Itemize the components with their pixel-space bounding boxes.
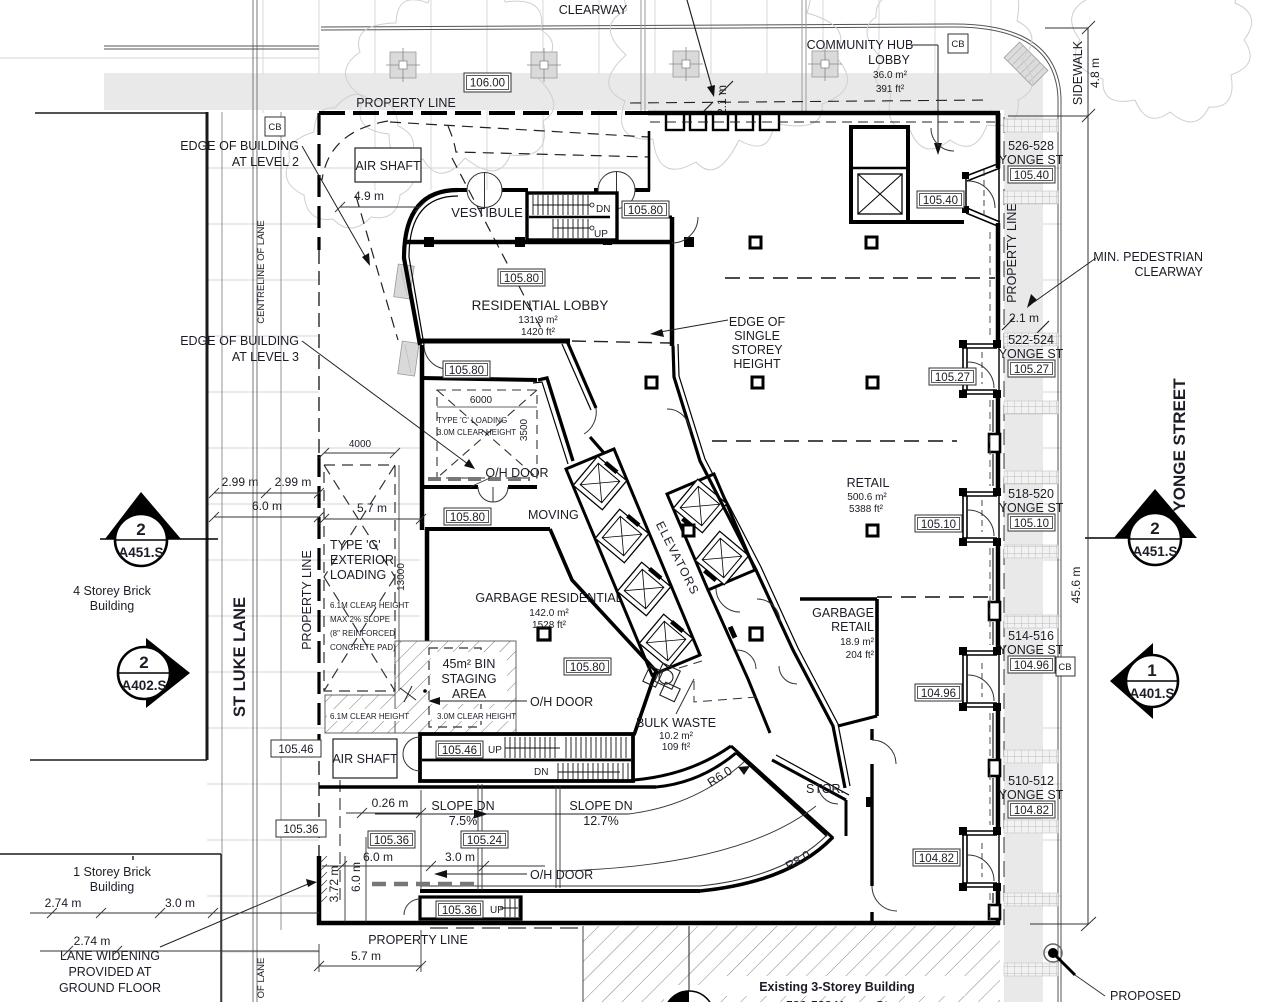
svg-text:DN: DN bbox=[596, 204, 610, 215]
svg-text:6.0 m: 6.0 m bbox=[252, 499, 282, 513]
svg-text:6.1M CLEAR HEIGHT: 6.1M CLEAR HEIGHT bbox=[330, 601, 409, 610]
svg-text:6.1M CLEAR HEIGHT: 6.1M CLEAR HEIGHT bbox=[330, 712, 409, 721]
svg-text:104.82: 104.82 bbox=[1014, 805, 1049, 817]
svg-text:36.0 m²: 36.0 m² bbox=[873, 70, 908, 81]
svg-text:CENTRELINE OF LANE: CENTRELINE OF LANE bbox=[256, 220, 267, 323]
svg-text:UP: UP bbox=[490, 905, 504, 916]
svg-text:AIR SHAFT: AIR SHAFT bbox=[355, 159, 421, 173]
svg-text:CB: CB bbox=[951, 39, 964, 50]
svg-text:105.10: 105.10 bbox=[1014, 518, 1049, 530]
svg-text:YONGE ST: YONGE ST bbox=[999, 643, 1064, 657]
svg-text:526-528: 526-528 bbox=[1008, 139, 1054, 153]
svg-text:CONCRETE PAD): CONCRETE PAD) bbox=[330, 643, 396, 652]
svg-text:105.46: 105.46 bbox=[442, 745, 477, 757]
svg-text:204 ft²: 204 ft² bbox=[846, 650, 875, 661]
svg-text:391 ft²: 391 ft² bbox=[876, 84, 905, 95]
svg-text:105.36: 105.36 bbox=[374, 835, 409, 847]
svg-text:YONGE STREET: YONGE STREET bbox=[1170, 378, 1189, 512]
svg-text:PROPOSED: PROPOSED bbox=[1110, 989, 1181, 1002]
svg-text:500.6 m²: 500.6 m² bbox=[847, 492, 887, 503]
svg-text:4000: 4000 bbox=[349, 439, 372, 450]
svg-text:18.9 m²: 18.9 m² bbox=[840, 637, 875, 648]
svg-text:105.27: 105.27 bbox=[1014, 364, 1049, 376]
svg-text:105.40: 105.40 bbox=[923, 195, 958, 207]
svg-text:HEIGHT: HEIGHT bbox=[733, 357, 781, 371]
svg-text:105.24: 105.24 bbox=[467, 835, 503, 847]
svg-text:522-524: 522-524 bbox=[1008, 333, 1054, 347]
svg-text:GROUND FLOOR: GROUND FLOOR bbox=[59, 981, 161, 995]
svg-text:2: 2 bbox=[1150, 519, 1159, 538]
svg-text:3.0M CLEAR HEIGHT: 3.0M CLEAR HEIGHT bbox=[437, 428, 516, 437]
svg-text:2.74 m: 2.74 m bbox=[74, 934, 111, 948]
svg-text:AIR SHAFT: AIR SHAFT bbox=[332, 752, 398, 766]
svg-text:A451.S: A451.S bbox=[118, 545, 163, 560]
svg-text:105.36: 105.36 bbox=[283, 824, 318, 836]
svg-text:109 ft²: 109 ft² bbox=[662, 742, 691, 753]
svg-text:104.96: 104.96 bbox=[921, 688, 956, 700]
svg-text:YONGE ST: YONGE ST bbox=[999, 153, 1064, 167]
svg-text:7.5%: 7.5% bbox=[449, 814, 478, 828]
svg-text:514-516: 514-516 bbox=[1008, 629, 1054, 643]
svg-text:GARBAGE RESIDENTIAL: GARBAGE RESIDENTIAL bbox=[475, 591, 622, 605]
svg-text:4.8 m: 4.8 m bbox=[1088, 58, 1102, 88]
svg-text:0.26 m: 0.26 m bbox=[372, 796, 409, 810]
svg-text:LOBBY: LOBBY bbox=[868, 53, 910, 67]
svg-text:4 Storey Brick: 4 Storey Brick bbox=[73, 584, 152, 598]
svg-text:MAX 2% SLOPE: MAX 2% SLOPE bbox=[330, 615, 390, 624]
svg-text:SIDEWALK: SIDEWALK bbox=[1071, 40, 1085, 105]
svg-text:518-520: 518-520 bbox=[1008, 487, 1054, 501]
svg-text:O/H DOOR: O/H DOOR bbox=[485, 466, 548, 480]
svg-text:AREA: AREA bbox=[452, 687, 487, 701]
svg-text:PROPERTY LINE: PROPERTY LINE bbox=[368, 933, 468, 947]
svg-text:1: 1 bbox=[1147, 661, 1156, 680]
svg-text:CLEARWAY: CLEARWAY bbox=[1134, 265, 1203, 279]
svg-text:45.6 m: 45.6 m bbox=[1069, 567, 1083, 604]
svg-text:3500: 3500 bbox=[519, 418, 530, 441]
svg-text:1528 ft²: 1528 ft² bbox=[532, 620, 567, 631]
svg-text:2.99 m: 2.99 m bbox=[222, 475, 259, 489]
svg-text:3.72 m: 3.72 m bbox=[327, 866, 341, 903]
svg-text:12.7%: 12.7% bbox=[583, 814, 618, 828]
svg-text:1420 ft²: 1420 ft² bbox=[521, 327, 556, 338]
svg-text:45m² BIN: 45m² BIN bbox=[443, 657, 496, 671]
svg-text:CLEARWAY: CLEARWAY bbox=[559, 3, 628, 17]
svg-text:YONGE ST: YONGE ST bbox=[999, 788, 1064, 802]
svg-text:TYPE 'G': TYPE 'G' bbox=[330, 538, 381, 552]
svg-text:SLOPE DN: SLOPE DN bbox=[431, 799, 494, 813]
svg-text:3.0 m: 3.0 m bbox=[445, 850, 475, 864]
svg-text:PROPERTY LINE: PROPERTY LINE bbox=[1005, 203, 1019, 303]
svg-text:2.74 m: 2.74 m bbox=[45, 896, 82, 910]
svg-text:A401.S: A401.S bbox=[1129, 686, 1174, 701]
svg-text:SINGLE: SINGLE bbox=[734, 329, 780, 343]
svg-text:SLOPE DN: SLOPE DN bbox=[569, 799, 632, 813]
svg-text:AT LEVEL 2: AT LEVEL 2 bbox=[232, 155, 299, 169]
svg-text:UP: UP bbox=[594, 229, 608, 240]
svg-text:2: 2 bbox=[136, 520, 145, 539]
svg-text:STOR.: STOR. bbox=[806, 782, 844, 796]
svg-text:EDGE OF BUILDING: EDGE OF BUILDING bbox=[180, 334, 299, 348]
svg-text:PROPERTY LINE: PROPERTY LINE bbox=[356, 96, 456, 110]
svg-text:MOVING: MOVING bbox=[528, 508, 579, 522]
svg-text:COMMUNITY HUB: COMMUNITY HUB bbox=[807, 38, 914, 52]
svg-text:GARBAGE: GARBAGE bbox=[812, 606, 874, 620]
svg-text:105.40: 105.40 bbox=[1014, 170, 1049, 182]
svg-text:131.9 m²: 131.9 m² bbox=[518, 315, 558, 326]
svg-text:104.96: 104.96 bbox=[1014, 660, 1049, 672]
svg-text:CB: CB bbox=[268, 122, 281, 133]
svg-text:5388 ft²: 5388 ft² bbox=[849, 504, 884, 515]
svg-text:2.1 m: 2.1 m bbox=[715, 85, 729, 115]
svg-text:Building: Building bbox=[90, 599, 135, 613]
svg-text:PROPERTY LINE: PROPERTY LINE bbox=[300, 550, 314, 650]
svg-text:STOREY: STOREY bbox=[731, 343, 783, 357]
svg-text:ST LUKE LANE: ST LUKE LANE bbox=[231, 597, 249, 717]
svg-text:A402.S: A402.S bbox=[121, 678, 166, 693]
svg-text:PROVIDED AT: PROVIDED AT bbox=[68, 965, 151, 979]
svg-text:Existing 3-Storey Building: Existing 3-Storey Building bbox=[759, 980, 915, 994]
svg-text:MIN. PEDESTRIAN: MIN. PEDESTRIAN bbox=[1093, 250, 1203, 264]
svg-text:A451.S: A451.S bbox=[1132, 544, 1177, 559]
svg-text:1 Storey Brick: 1 Storey Brick bbox=[73, 865, 152, 879]
svg-text:142.0 m²: 142.0 m² bbox=[529, 608, 569, 619]
svg-text:3.0M CLEAR HEIGHT: 3.0M CLEAR HEIGHT bbox=[437, 712, 516, 721]
svg-text:105.80: 105.80 bbox=[450, 512, 485, 524]
svg-text:EDGE OF: EDGE OF bbox=[729, 315, 786, 329]
svg-text:4.9 m: 4.9 m bbox=[354, 189, 384, 203]
svg-text:6.0 m: 6.0 m bbox=[349, 862, 363, 892]
svg-text:2.99 m: 2.99 m bbox=[275, 475, 312, 489]
svg-text:OF LANE: OF LANE bbox=[256, 958, 267, 999]
svg-text:CB: CB bbox=[1058, 662, 1071, 673]
svg-text:6000: 6000 bbox=[470, 395, 493, 406]
svg-text:105.80: 105.80 bbox=[628, 205, 663, 217]
svg-text:TYPE 'C' LOADING: TYPE 'C' LOADING bbox=[437, 416, 507, 425]
svg-text:10.2 m²: 10.2 m² bbox=[659, 731, 694, 742]
svg-text:LOADING: LOADING bbox=[330, 568, 386, 582]
svg-text:510-512: 510-512 bbox=[1008, 774, 1054, 788]
svg-text:EXTERIOR: EXTERIOR bbox=[330, 553, 394, 567]
svg-text:YONGE ST: YONGE ST bbox=[999, 347, 1064, 361]
svg-text:VESTIBULE: VESTIBULE bbox=[451, 205, 523, 220]
svg-text:STAGING: STAGING bbox=[441, 672, 496, 686]
svg-text:EDGE OF BUILDING: EDGE OF BUILDING bbox=[180, 139, 299, 153]
svg-text:UP: UP bbox=[488, 745, 502, 756]
svg-text:RETAIL: RETAIL bbox=[847, 476, 890, 490]
svg-text:BULK WASTE: BULK WASTE bbox=[636, 716, 716, 730]
svg-text:5.7 m: 5.7 m bbox=[357, 501, 387, 515]
svg-text:AT LEVEL 3: AT LEVEL 3 bbox=[232, 350, 299, 364]
svg-text:RESIDENTIAL LOBBY: RESIDENTIAL LOBBY bbox=[472, 298, 609, 313]
svg-text:5.7 m: 5.7 m bbox=[351, 949, 381, 963]
svg-text:O/H DOOR: O/H DOOR bbox=[530, 868, 593, 882]
svg-text:DN: DN bbox=[534, 767, 548, 778]
svg-text:105.80: 105.80 bbox=[449, 365, 484, 377]
svg-text:105.27: 105.27 bbox=[935, 372, 970, 384]
svg-text:106.00: 106.00 bbox=[470, 78, 505, 90]
svg-text:RETAIL: RETAIL bbox=[831, 620, 874, 634]
svg-text:13000: 13000 bbox=[396, 563, 407, 591]
svg-text:105.10: 105.10 bbox=[921, 519, 956, 531]
svg-text:104.82: 104.82 bbox=[919, 853, 954, 865]
svg-text:105.80: 105.80 bbox=[504, 273, 539, 285]
svg-text:YONGE ST: YONGE ST bbox=[999, 501, 1064, 515]
svg-text:(8" REINFORCED: (8" REINFORCED bbox=[330, 629, 395, 638]
svg-text:2: 2 bbox=[139, 653, 148, 672]
svg-text:105.80: 105.80 bbox=[570, 662, 605, 674]
svg-text:Building: Building bbox=[90, 880, 135, 894]
svg-text:3.0 m: 3.0 m bbox=[165, 896, 195, 910]
svg-text:105.36: 105.36 bbox=[442, 905, 477, 917]
svg-text:105.46: 105.46 bbox=[278, 744, 313, 756]
svg-text:O/H DOOR: O/H DOOR bbox=[530, 695, 593, 709]
svg-text:6.0 m: 6.0 m bbox=[363, 850, 393, 864]
